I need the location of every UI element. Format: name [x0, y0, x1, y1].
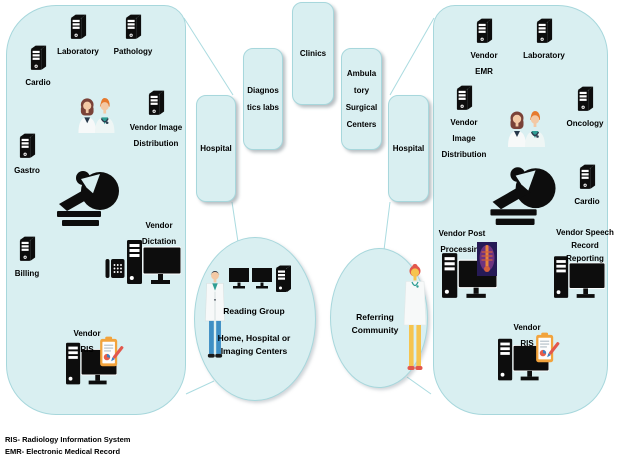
server-icon — [475, 17, 494, 44]
server-icon — [18, 235, 37, 262]
node-vendor-speech-record-reporting-right: Vendor Speech Record Reporting — [552, 226, 618, 306]
node-label: Vendor Image Distribution — [442, 115, 487, 163]
dual-monitor-workstation-icon — [229, 265, 301, 307]
node-vendor-dictation-left: Vendor Dictation — [103, 218, 183, 288]
server-icon — [576, 85, 595, 112]
node-vendor-ris-left: Vendor RIS — [62, 326, 126, 402]
node-label: Vendor EMR — [470, 48, 497, 80]
facility-label: Hospital — [393, 140, 425, 157]
diagram-canvas: Hospital Diagnos tics labs Clinics Ambul… — [0, 0, 618, 462]
node-gastro-left: Gastro — [3, 132, 51, 179]
node-label: Billing — [15, 266, 39, 282]
facility-hospital-left: Hospital — [196, 95, 236, 202]
server-icon — [69, 13, 88, 40]
node-oncology-right: Oncology — [561, 85, 609, 132]
node-vendor-image-distribution-left: Vendor Image Distribution — [126, 89, 186, 152]
referring-physician-icon — [402, 263, 428, 376]
server-icon — [124, 13, 143, 40]
legend-ris-definition: RIS- Radiology Information System — [5, 434, 130, 446]
node-label: Vendor Image Distribution — [130, 120, 182, 152]
clipboard-icon — [535, 332, 560, 364]
node-label: Pathology — [114, 44, 153, 60]
node-label: Laboratory — [523, 48, 565, 64]
node-label: Cardio — [25, 75, 50, 91]
facility-label: Diagnos tics labs — [247, 82, 279, 116]
facility-clinics: Clinics — [292, 2, 334, 105]
node-vendor-ris-right: Vendor RIS — [498, 320, 560, 398]
node-pathology-left: Pathology — [109, 13, 157, 60]
node-laboratory-right: Laboratory — [519, 17, 569, 64]
desk-phone-icon — [105, 255, 125, 282]
node-label: Vendor Dictation — [136, 218, 182, 250]
mri-scanner-icon — [488, 163, 558, 226]
server-icon — [29, 44, 48, 71]
reading-group-title: Reading Group — [209, 305, 299, 318]
node-label: Gastro — [14, 163, 40, 179]
node-laboratory-left: Laboratory — [54, 13, 102, 60]
server-icon — [18, 132, 37, 159]
node-cardio-right: Cardio — [563, 163, 611, 210]
node-label: Oncology — [567, 116, 604, 132]
doctors-pair-icon — [74, 96, 116, 133]
facility-diagnostics-labs: Diagnos tics labs — [243, 48, 283, 150]
medical-scan-image-icon — [477, 242, 497, 276]
doctors-pair-icon — [504, 109, 546, 147]
clipboard-icon — [99, 336, 124, 368]
reading-group-subtitle: Home, Hospital or Imaging Centers — [203, 332, 305, 358]
facility-ambulatory-surgical-centers: Ambula tory Surgical Centers — [341, 48, 382, 150]
node-label: Cardio — [574, 194, 599, 210]
server-icon — [535, 17, 554, 44]
legend: RIS- Radiology Information System EMR- E… — [5, 434, 130, 457]
node-vendor-image-distribution-right: Vendor Image Distribution — [436, 84, 492, 163]
facility-label: Hospital — [200, 140, 232, 157]
facility-label: Clinics — [300, 45, 326, 62]
node-label: Laboratory — [57, 44, 99, 60]
node-label: Vendor Speech Record Reporting — [554, 226, 616, 265]
server-icon — [147, 89, 166, 116]
node-vendor-emr-right: Vendor EMR — [460, 17, 508, 80]
node-billing-left: Billing — [3, 235, 51, 282]
server-icon — [455, 84, 474, 111]
facility-label: Ambula tory Surgical Centers — [346, 65, 378, 133]
server-icon — [578, 163, 597, 190]
referring-community-title: Referring Community — [339, 311, 411, 337]
facility-hospital-right: Hospital — [388, 95, 429, 202]
legend-emr-definition: EMR- Electronic Medical Record — [5, 446, 130, 458]
node-vendor-post-processing-right: Vendor Post Processing — [432, 226, 502, 306]
